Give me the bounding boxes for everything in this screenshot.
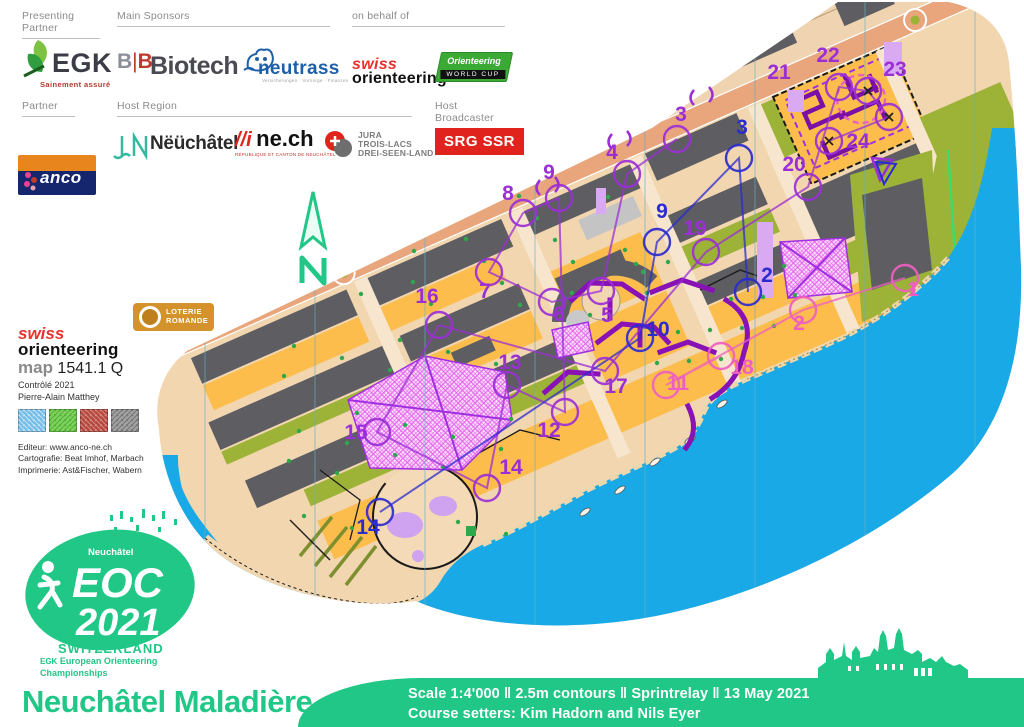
- banco-dots-icon: [20, 167, 42, 193]
- svg-text:5: 5: [601, 304, 613, 327]
- egk-wordmark: EGK: [52, 48, 112, 79]
- host-region-label: Host Region: [117, 100, 412, 117]
- main-sponsors-label: Main Sponsors: [117, 10, 330, 27]
- svg-text:10: 10: [646, 318, 669, 341]
- ne-ch-logo: //i ne.ch RÉPUBLIQUE ET CANTON DE NEUCHÂ…: [235, 126, 336, 157]
- host-broadcaster-label: Host Broadcaster: [435, 100, 505, 129]
- map-brand-line2: orienteering: [18, 342, 188, 358]
- ville-neuchatel-logo: [110, 126, 150, 164]
- svg-text:20: 20: [782, 153, 805, 176]
- banco-logo: anco: [18, 155, 96, 195]
- partner-label: Partner: [22, 100, 75, 117]
- map-cartography: Cartografie: Beat Imhof, Marbach: [18, 453, 188, 464]
- svg-text:15: 15: [344, 421, 368, 444]
- map-controller: Pierre-Alain Matthey: [18, 392, 188, 404]
- eoc-switzerland: SWITZERLAND: [58, 641, 164, 656]
- svg-text:16: 16: [415, 285, 438, 308]
- svg-text:1: 1: [907, 278, 919, 301]
- map-printer: Imprimerie: Ast&Fischer, Wabern: [18, 465, 188, 476]
- svg-text:2: 2: [761, 264, 773, 287]
- neutrass-tagline: Versicherungen · Vorsorge · Finanzen: [262, 78, 349, 83]
- city-skyline-silhouette: [818, 628, 968, 680]
- footer-course-setters: Course setters: Kim Hadorn and Nils Eyer: [408, 705, 810, 725]
- svg-text:22: 22: [816, 44, 839, 67]
- svg-text:18: 18: [730, 356, 754, 379]
- loterie-line2: ROMANDE: [166, 317, 208, 326]
- egk-tagline: Sainement assuré: [40, 80, 111, 89]
- svg-text:21: 21: [767, 61, 791, 84]
- swatch-red: [80, 409, 108, 432]
- world-cup-badge: Orienteering WORLD CUP: [435, 52, 513, 82]
- swatch-blue: [18, 409, 46, 432]
- svg-text:4: 4: [606, 141, 618, 164]
- svg-text:13: 13: [498, 351, 521, 374]
- eoc-line2: 2021: [75, 602, 161, 644]
- ne-ch-slashes: //i: [235, 129, 252, 151]
- swiss-orienteering-line2: orienteering: [352, 70, 447, 88]
- loterie-ring-icon: [139, 306, 161, 328]
- map-editor: Editeur: www.anco-ne.ch: [18, 442, 188, 453]
- eoc-subtitle: EGK European Orienteering Championships: [40, 656, 157, 679]
- bb-b1: B: [117, 50, 132, 73]
- world-cup-line2: WORLD CUP: [440, 70, 505, 79]
- world-cup-line1: Orienteering: [447, 56, 501, 66]
- footer-bar: Scale 1:4'000 ‖ 2.5m contours ‖ Sprintre…: [298, 678, 1024, 727]
- svg-text:14: 14: [499, 456, 523, 479]
- eoc-line5: Championships: [40, 668, 108, 678]
- presenting-partner-label: Presenting Partner: [22, 10, 100, 39]
- svg-text:9: 9: [656, 200, 668, 223]
- map-number: 1541.1 Q: [57, 360, 123, 377]
- map-word: map: [18, 358, 53, 377]
- svg-text:7: 7: [479, 280, 491, 303]
- banco-wordmark: anco: [40, 168, 82, 188]
- jura-circles-icon: [322, 128, 356, 160]
- swatch-green: [49, 409, 77, 432]
- biotech-wordmark: Biotech: [150, 52, 238, 81]
- bb-biotech-mark: B|B: [117, 50, 153, 74]
- neuchatel-wave-icon: [110, 126, 150, 164]
- svg-text:6: 6: [553, 303, 565, 326]
- ne-ch-wordmark: ne.ch: [256, 126, 313, 151]
- svg-text:3: 3: [675, 103, 687, 126]
- jura-logo: [322, 128, 356, 160]
- eoc-line1: EOC: [72, 559, 164, 606]
- poster: 3456789121314151617192021222324239101412…: [0, 0, 1024, 727]
- svg-text:17: 17: [604, 375, 627, 398]
- loterie-romande-logo: LOTERIE ROMANDE: [133, 303, 214, 331]
- print-swatches: [18, 409, 188, 437]
- svg-text:24: 24: [846, 130, 870, 153]
- svg-text:23: 23: [883, 58, 906, 81]
- page-title: Neuchâtel Maladière: [22, 684, 312, 720]
- north-arrow-icon: [301, 192, 325, 283]
- ne-ch-subline: RÉPUBLIQUE ET CANTON DE NEUCHÂTEL: [235, 152, 336, 157]
- map-control-line: Contrôlé 2021: [18, 380, 188, 392]
- footer-event-info: Scale 1:4'000 ‖ 2.5m contours ‖ Sprintre…: [408, 685, 810, 705]
- svg-text:19: 19: [683, 217, 706, 240]
- svg-text:9: 9: [543, 161, 555, 184]
- eoc-line4: European Orienteering: [60, 656, 158, 666]
- jura-text: JURA TROIS-LACS DREI-SEEN-LAND: [358, 131, 434, 158]
- srg-ssr-logo: SRG SSR: [435, 128, 524, 155]
- svg-text:3: 3: [736, 116, 748, 139]
- swatch-gray: [111, 409, 139, 432]
- svg-text:8: 8: [502, 182, 514, 205]
- svg-text:12: 12: [537, 419, 560, 442]
- jura-line3: DREI-SEEN-LAND: [358, 149, 434, 158]
- svg-text:14: 14: [356, 516, 380, 539]
- svg-text:2: 2: [793, 312, 805, 335]
- svg-text:11: 11: [667, 372, 690, 395]
- map-info-block: swiss orienteering map 1541.1 Q Contrôlé…: [18, 326, 188, 476]
- neutrass-wordmark: neutrass: [258, 58, 340, 80]
- egk-mini-logo: EGK: [40, 657, 57, 666]
- on-behalf-label: on behalf of: [352, 10, 505, 27]
- eoc-city: Neuchâtel: [88, 547, 133, 558]
- neuchatel-wordmark: Nëüchâtel: [150, 133, 238, 155]
